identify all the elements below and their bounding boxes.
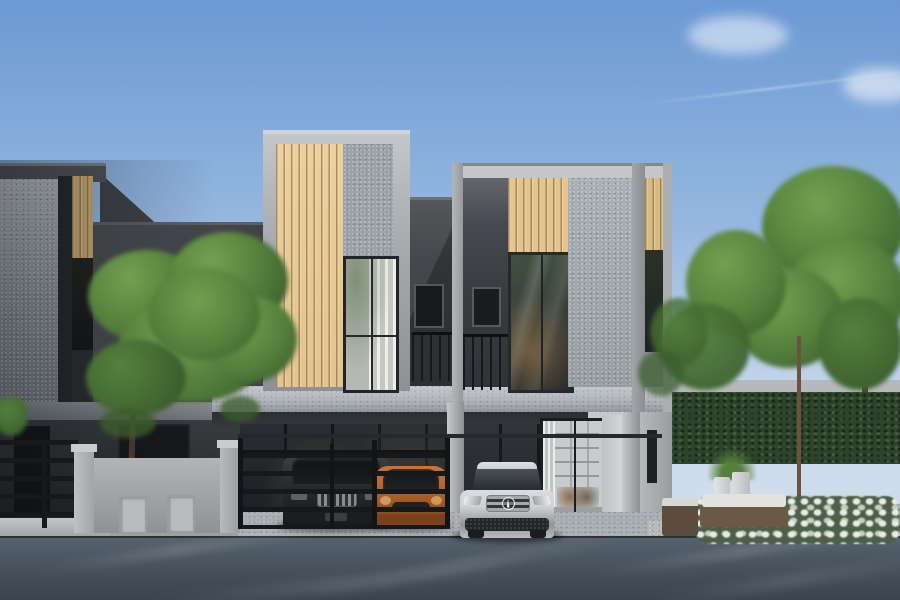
interior-shelves	[555, 421, 599, 487]
cloud-icon	[688, 16, 788, 54]
window-mullion	[346, 335, 396, 337]
small-window	[414, 284, 444, 328]
tree-canopy	[148, 268, 260, 360]
fence-post	[445, 438, 450, 528]
right-upper-window	[508, 252, 574, 393]
garden-tree-canopy	[818, 298, 900, 390]
carport-fence	[238, 450, 450, 529]
sapling-trunk	[797, 336, 801, 516]
mercedes-wheel	[468, 530, 484, 538]
hedge	[672, 392, 900, 464]
mercedes-headlight	[463, 496, 482, 505]
interior-items	[557, 487, 599, 507]
carport-beam	[238, 434, 662, 438]
fence-post	[330, 444, 334, 528]
right-edge-slats	[645, 178, 663, 250]
gate-pillar-cap	[71, 444, 97, 452]
outdoor-armchair	[662, 498, 698, 536]
outdoor-sofa	[700, 505, 788, 527]
gate-wall	[94, 458, 222, 533]
porch-railing	[463, 334, 508, 390]
mercedes-wheel	[530, 530, 546, 538]
gate-wall-panel	[119, 496, 147, 534]
right-porch-recess	[463, 178, 508, 387]
fence-post	[238, 438, 243, 528]
fence-post	[42, 440, 47, 528]
mercedes-star-icon	[502, 497, 515, 510]
center-speckle-panel	[343, 144, 393, 256]
window-mullion	[371, 259, 373, 390]
sofa-cushions	[702, 494, 786, 507]
architectural-render	[0, 0, 900, 600]
fence-post	[372, 440, 377, 528]
window-mullion	[541, 255, 543, 390]
tree-canopy	[100, 408, 156, 438]
porch-window	[472, 287, 501, 327]
gate-wall-panel	[167, 495, 195, 533]
balcony-railing-mid	[412, 332, 454, 381]
silver-mercedes	[460, 462, 554, 538]
right-frame-left-pillar	[452, 163, 463, 412]
rail-fence-left	[0, 440, 78, 528]
mercedes-headlight	[532, 496, 551, 505]
center-upper-window	[343, 256, 399, 393]
gate-pillar	[74, 452, 94, 533]
right-wood-slats	[508, 178, 568, 252]
white-wall	[602, 415, 622, 527]
mercedes-windshield	[472, 469, 542, 491]
right-speckle-panel	[568, 178, 632, 387]
sapling-leaves	[638, 350, 684, 396]
gate-pillar	[220, 448, 240, 533]
tree-canopy	[220, 396, 260, 422]
